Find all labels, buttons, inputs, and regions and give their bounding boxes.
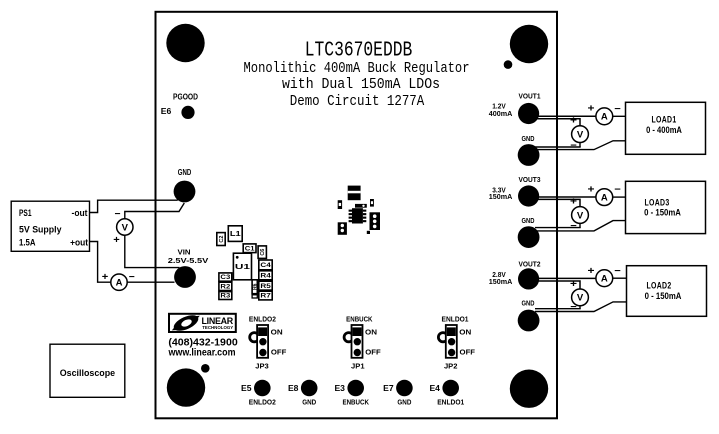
- svg-text:OFF: OFF: [271, 347, 287, 356]
- svg-text:VOUT1: VOUT1: [519, 91, 541, 100]
- svg-text:E7: E7: [383, 384, 394, 393]
- svg-text:C1: C1: [245, 246, 256, 252]
- svg-text:ENLDO2: ENLDO2: [249, 315, 276, 324]
- svg-text:with Dual 150mA LDOs: with Dual 150mA LDOs: [282, 77, 440, 93]
- svg-text:+out: +out: [70, 238, 89, 249]
- svg-text:+: +: [102, 272, 109, 283]
- svg-text:V: V: [577, 293, 584, 304]
- svg-text:−: −: [614, 266, 621, 277]
- svg-text:+: +: [588, 104, 595, 115]
- svg-text:LOAD2: LOAD2: [647, 281, 672, 291]
- svg-text:ON: ON: [459, 327, 471, 336]
- svg-text:PS1: PS1: [19, 208, 32, 219]
- svg-text:OFF: OFF: [460, 347, 476, 356]
- svg-text:+: +: [588, 185, 595, 196]
- svg-text:GND: GND: [522, 299, 535, 308]
- svg-text:−: −: [614, 104, 621, 115]
- svg-text:C2: C2: [219, 236, 225, 243]
- svg-text:A: A: [116, 278, 123, 289]
- svg-text:E5: E5: [241, 384, 252, 393]
- svg-text:+: +: [588, 266, 595, 277]
- svg-text:-out: -out: [72, 208, 89, 219]
- svg-text:5V Supply: 5V Supply: [19, 224, 62, 235]
- svg-text:+: +: [570, 279, 577, 290]
- svg-text:+: +: [113, 235, 120, 246]
- svg-text:V: V: [122, 222, 129, 233]
- svg-text:R3: R3: [220, 294, 231, 300]
- svg-text:+: +: [570, 197, 577, 208]
- svg-text:OFF: OFF: [365, 347, 381, 356]
- svg-text:Demo Circuit 1277A: Demo Circuit 1277A: [290, 94, 425, 110]
- svg-text:150mA: 150mA: [489, 277, 513, 286]
- svg-text:R4: R4: [260, 273, 271, 279]
- svg-text:GND: GND: [522, 134, 535, 143]
- svg-text:0 - 150mA: 0 - 150mA: [644, 207, 681, 217]
- svg-text:R6: R6: [252, 283, 258, 290]
- svg-text:TECHNOLOGY: TECHNOLOGY: [202, 325, 233, 330]
- svg-text:ENBUCK: ENBUCK: [342, 398, 369, 407]
- svg-text:C4: C4: [260, 263, 271, 269]
- svg-text:PGOOD: PGOOD: [173, 92, 198, 101]
- svg-text:ENBUCK: ENBUCK: [346, 315, 373, 324]
- svg-text:150mA: 150mA: [489, 192, 513, 201]
- svg-text:LOAD3: LOAD3: [645, 197, 670, 207]
- svg-text:VOUT3: VOUT3: [519, 175, 541, 184]
- svg-text:0 - 400mA: 0 - 400mA: [646, 125, 682, 135]
- svg-text:0 - 150mA: 0 - 150mA: [645, 291, 682, 301]
- svg-text:E4: E4: [429, 384, 440, 393]
- svg-text:GND: GND: [397, 398, 411, 407]
- svg-text:A: A: [601, 192, 608, 203]
- svg-text:1.5A: 1.5A: [19, 237, 36, 248]
- svg-text:ENLDO1: ENLDO1: [437, 398, 464, 407]
- svg-text:GND: GND: [302, 398, 316, 407]
- svg-text:R2: R2: [220, 284, 231, 290]
- svg-text:−: −: [129, 272, 135, 283]
- svg-text:R7: R7: [260, 294, 271, 300]
- svg-text:ENLDO1: ENLDO1: [442, 315, 469, 324]
- svg-text:GND: GND: [178, 168, 192, 177]
- svg-text:R5: R5: [260, 284, 271, 290]
- svg-text:C3: C3: [220, 275, 231, 281]
- svg-text:−: −: [115, 209, 121, 220]
- svg-text:Monolithic 400mA Buck Regulato: Monolithic 400mA Buck Regulator: [244, 61, 470, 77]
- svg-text:400mA: 400mA: [489, 109, 513, 118]
- svg-text:VOUT2: VOUT2: [519, 260, 541, 269]
- svg-text:LOAD1: LOAD1: [652, 114, 677, 124]
- svg-text:JP1: JP1: [351, 361, 365, 370]
- svg-text:JP2: JP2: [444, 361, 458, 370]
- svg-text:L1: L1: [230, 231, 241, 238]
- svg-text:www.linear.com: www.linear.com: [168, 348, 236, 359]
- svg-text:V: V: [577, 129, 584, 140]
- svg-text:V: V: [577, 210, 584, 221]
- svg-text:2.5V-5.5V: 2.5V-5.5V: [168, 256, 209, 265]
- svg-text:+: +: [570, 116, 577, 127]
- svg-text:−: −: [614, 185, 621, 196]
- svg-text:GND: GND: [522, 216, 535, 225]
- svg-text:E3: E3: [334, 384, 345, 393]
- svg-text:U1: U1: [235, 264, 250, 271]
- svg-text:A: A: [601, 274, 608, 285]
- svg-text:JP3: JP3: [255, 361, 269, 370]
- svg-text:Oscilloscope: Oscilloscope: [60, 368, 115, 379]
- svg-text:E8: E8: [288, 384, 299, 393]
- svg-text:E6: E6: [161, 107, 172, 116]
- svg-text:A: A: [601, 112, 608, 123]
- svg-text:LTC3670EDDB: LTC3670EDDB: [305, 38, 413, 62]
- svg-text:ON: ON: [271, 327, 283, 336]
- svg-text:C6: C6: [260, 249, 266, 256]
- svg-text:ON: ON: [365, 327, 377, 336]
- svg-text:ENLDO2: ENLDO2: [249, 398, 276, 407]
